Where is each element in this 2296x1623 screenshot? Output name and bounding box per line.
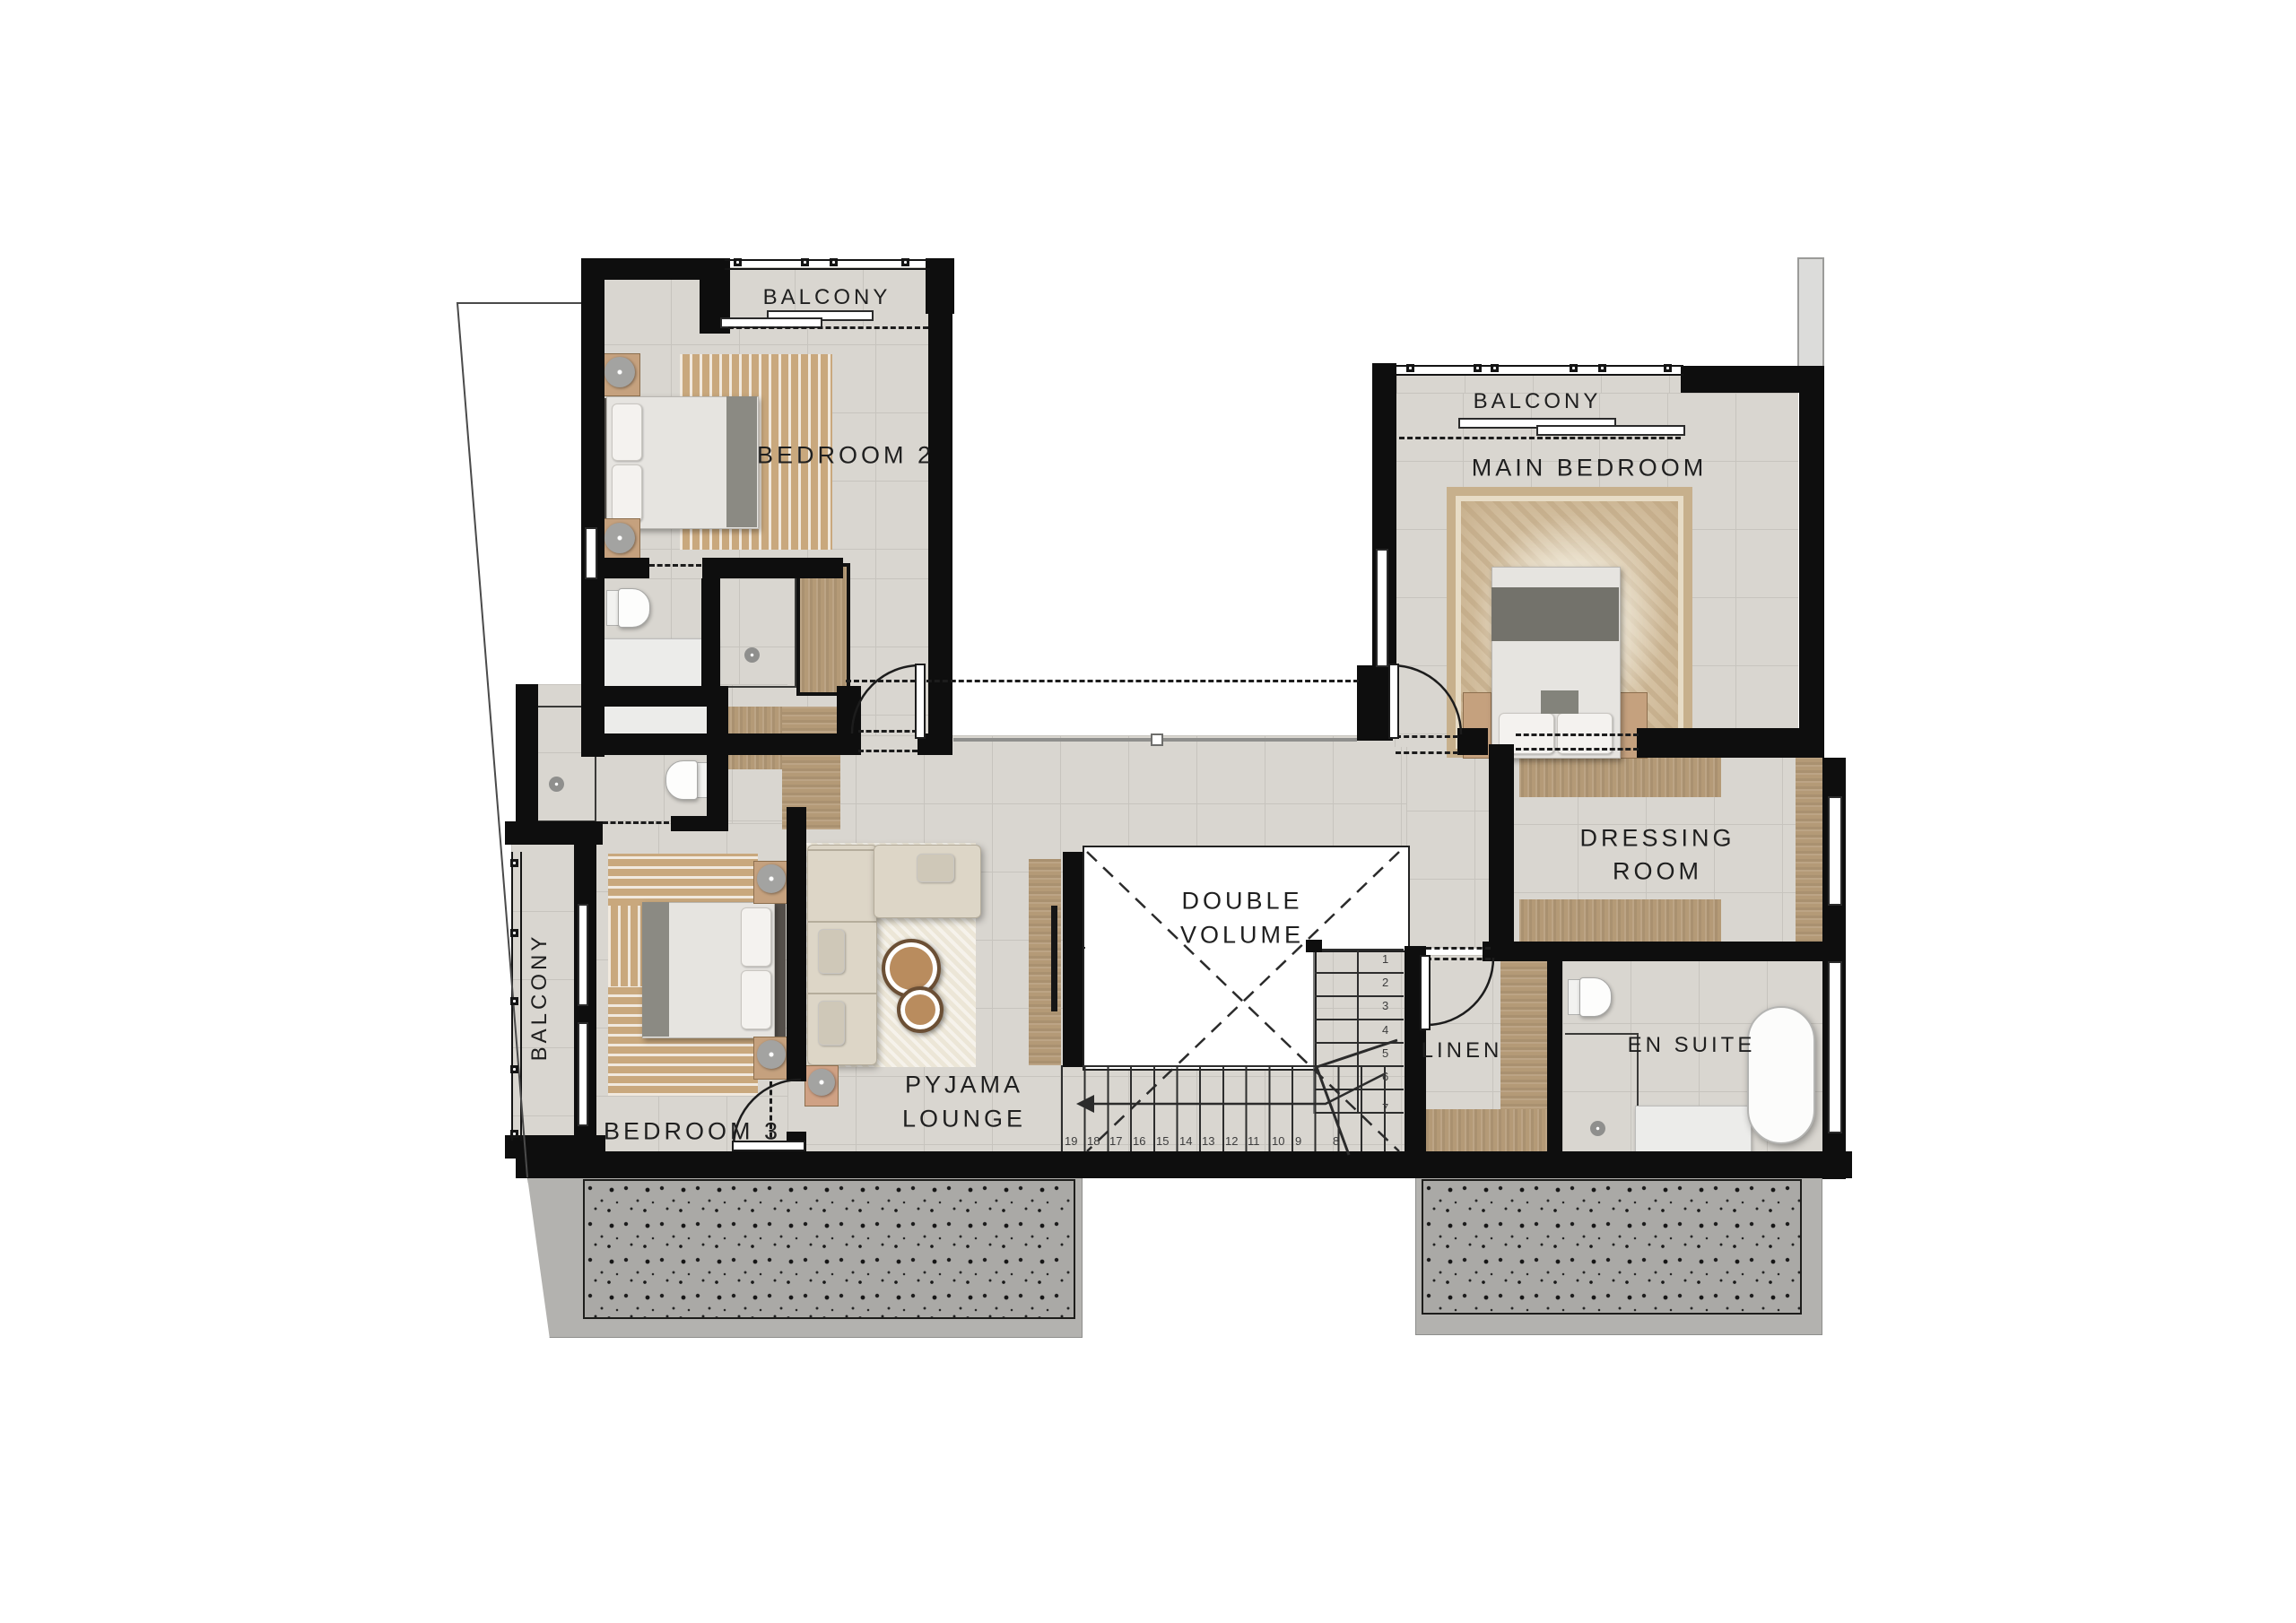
stair-number: 8	[1333, 1134, 1339, 1148]
stair-number: 10	[1272, 1134, 1284, 1148]
balcony-bedroom3-label: BALCONY	[527, 933, 552, 1062]
railing-post	[1474, 364, 1482, 372]
railing-post	[1406, 364, 1414, 372]
stair-number: 19	[1065, 1134, 1077, 1148]
stair-number: 6	[1382, 1070, 1388, 1083]
stair-number: 11	[1248, 1134, 1260, 1148]
pyjama-lounge-label-2: LOUNGE	[902, 1106, 1026, 1133]
balustrade-post	[1151, 733, 1163, 746]
railing-post	[510, 929, 518, 937]
railing-post	[510, 1130, 518, 1138]
double-volume-label-2: VOLUME	[1180, 922, 1304, 950]
bedroom2-label: BEDROOM 2	[757, 442, 935, 470]
pyjama-lounge-label-1: PYJAMA	[905, 1072, 1023, 1099]
vestibule-door-leaf	[915, 664, 926, 739]
stair-number: 3	[1382, 999, 1388, 1012]
railing-post	[1570, 364, 1578, 372]
dressing-room-label-2: ROOM	[1613, 858, 1702, 886]
railing-post	[510, 997, 518, 1005]
stair-number: 5	[1382, 1046, 1388, 1060]
stair-number: 7	[1382, 1101, 1388, 1115]
railing-post	[510, 1065, 518, 1073]
balcony-bedroom2-label: BALCONY	[763, 285, 891, 310]
railing-post	[901, 258, 909, 266]
stair-number: 1	[1382, 952, 1388, 966]
stair-number: 13	[1202, 1134, 1214, 1148]
linen-label: LINEN	[1422, 1038, 1503, 1063]
stair-number: 17	[1109, 1134, 1122, 1148]
railing-post	[1598, 364, 1606, 372]
floor-plan: 1 2 3 4 5 6 7 19 18 17 16 15 14 13 12 11…	[0, 0, 2296, 1623]
dressing-room-label-1: DRESSING	[1579, 825, 1735, 853]
main-bedroom-label: MAIN BEDROOM	[1472, 455, 1708, 482]
railing-post	[801, 258, 809, 266]
stair-number: 14	[1179, 1134, 1192, 1148]
stair-number: 4	[1382, 1023, 1388, 1037]
en-suite-label: EN SUITE	[1628, 1033, 1756, 1058]
railing-post	[510, 859, 518, 867]
main-bedroom-door-leaf	[1388, 664, 1399, 739]
stair-number: 2	[1382, 976, 1388, 989]
stair-number: 15	[1156, 1134, 1169, 1148]
stair-number: 18	[1087, 1134, 1100, 1148]
balcony-main-label: BALCONY	[1474, 389, 1602, 414]
railing-post	[734, 258, 742, 266]
linen-door-leaf	[1420, 955, 1431, 1030]
bedroom3-label: BEDROOM 3	[604, 1118, 781, 1146]
stair-number: 12	[1225, 1134, 1238, 1148]
stair-number: 16	[1133, 1134, 1145, 1148]
railing-post	[1664, 364, 1672, 372]
plan-linework	[0, 0, 2296, 1623]
double-volume-label-1: DOUBLE	[1181, 888, 1302, 916]
stair-number: 9	[1295, 1134, 1301, 1148]
railing-post	[1491, 364, 1499, 372]
railing-post	[830, 258, 838, 266]
